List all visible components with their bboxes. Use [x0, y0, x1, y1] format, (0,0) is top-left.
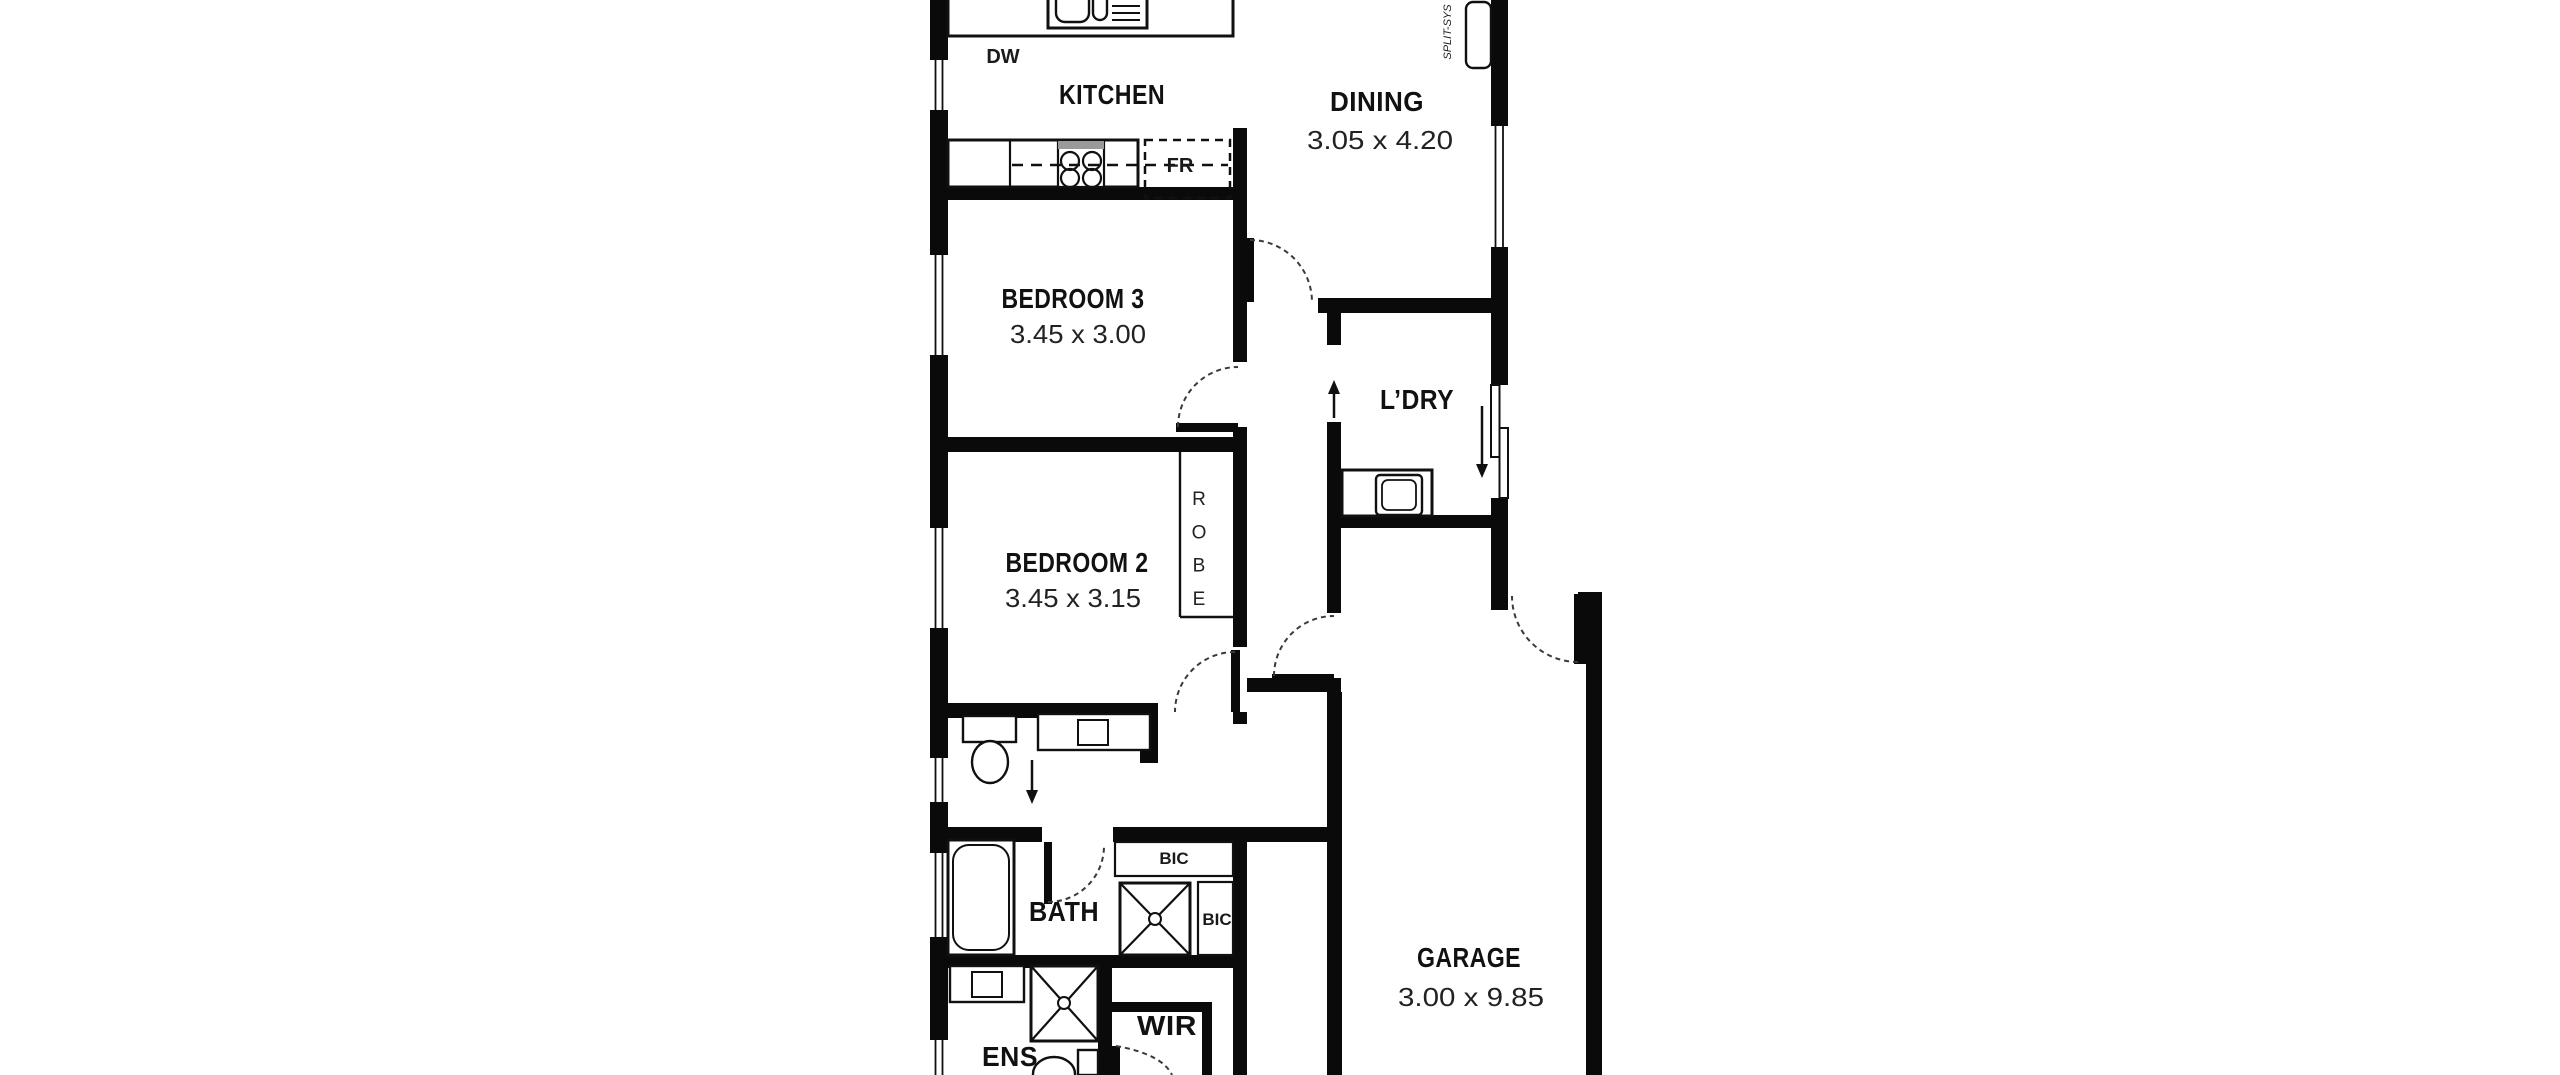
doorway-wc-arrow	[1026, 760, 1038, 804]
bathtub	[948, 840, 1014, 955]
door-bedroom2	[1175, 650, 1240, 712]
split-system-unit	[1466, 2, 1491, 68]
window-kitchen	[936, 60, 943, 110]
window-ens	[936, 1040, 943, 1075]
shower-bath	[1120, 883, 1190, 955]
fixture-label-bic-top: BIC	[1159, 849, 1188, 868]
door-wir	[1112, 1046, 1172, 1075]
room-dims-dining: 3.05 x 4.20	[1307, 125, 1453, 155]
door-dining-hall	[1246, 238, 1312, 302]
window-bedroom2	[936, 528, 943, 628]
floorplan-canvas: KITCHEN DINING 3.05 x 4.20 BEDROOM 3 3.4…	[0, 0, 2560, 1075]
fixture-label-fridge: FR	[1167, 155, 1194, 177]
room-label-bedroom2: BEDROOM 2	[1006, 547, 1149, 578]
floorplan-drawing: KITCHEN DINING 3.05 x 4.20 BEDROOM 3 3.4…	[0, 0, 2560, 1075]
fixture-label-bic-side: BIC	[1202, 910, 1231, 929]
toilet-wc	[963, 716, 1016, 783]
room-label-bedroom3: BEDROOM 3	[1002, 283, 1145, 314]
sliding-door-laundry	[1476, 385, 1508, 498]
room-label-dining: DINING	[1330, 86, 1424, 117]
room-label-ens: ENS	[982, 1041, 1038, 1072]
room-dims-garage: 3.00 x 9.85	[1398, 982, 1544, 1012]
window-wc	[936, 758, 943, 802]
toilet-ens	[1033, 1050, 1098, 1075]
window-dining	[1496, 126, 1504, 247]
room-dims-bedroom2: 3.45 x 3.15	[1005, 583, 1141, 613]
room-label-wir: WIR	[1137, 1010, 1197, 1041]
robe-closet	[1180, 452, 1233, 617]
vanity-ens	[950, 966, 1024, 1002]
fixture-label-robe: ROBE	[1192, 489, 1207, 610]
shower-ens	[1031, 966, 1098, 1041]
door-bedroom3	[1176, 367, 1238, 432]
vanity-wc	[1038, 714, 1150, 750]
room-label-laundry: L’DRY	[1380, 384, 1454, 415]
room-dims-bedroom3: 3.45 x 3.00	[1010, 319, 1146, 349]
door-bath	[1044, 842, 1104, 904]
kitchen-sink-bench	[948, 0, 1233, 36]
laundry-tub	[1342, 470, 1432, 516]
window-bedroom3	[936, 255, 943, 355]
door-garage	[1512, 594, 1586, 664]
door-hall-rear	[1272, 616, 1334, 682]
cooktop-back-strip	[1058, 141, 1104, 149]
room-label-garage: GARAGE	[1417, 942, 1521, 973]
window-bath	[936, 853, 943, 937]
room-label-bath: BATH	[1029, 896, 1099, 927]
fixture-label-dishwasher: DW	[986, 46, 1019, 68]
doorway-laundry-arrow	[1328, 380, 1340, 418]
fixture-label-split-system: SPLIT-SYS	[1442, 4, 1454, 60]
room-label-kitchen: KITCHEN	[1059, 79, 1165, 110]
